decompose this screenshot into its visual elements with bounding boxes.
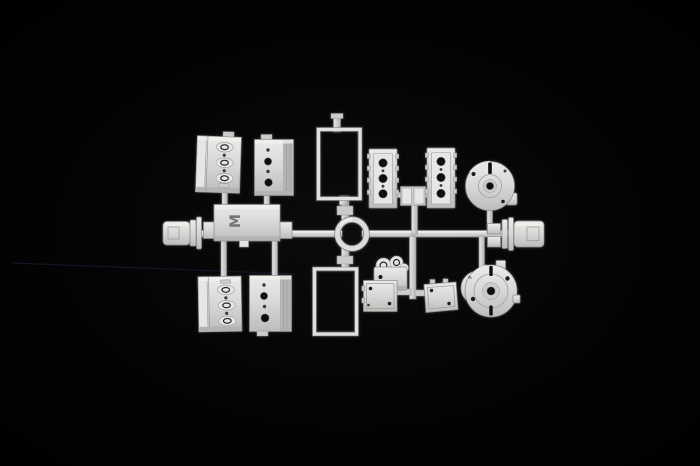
crankcase-half-lower-right — [250, 276, 292, 337]
cylinder-head-right — [425, 148, 456, 208]
crankcase-half-upper-right — [255, 135, 294, 196]
photo-canvas: M — [0, 0, 700, 466]
sprue-marking-letter: M — [228, 214, 244, 228]
cylinder-head-left — [367, 149, 398, 208]
engine-mount-right — [424, 279, 458, 313]
sprue-photo: M — [0, 0, 700, 466]
head-bracket — [401, 187, 426, 206]
engine-mount-left — [362, 281, 397, 312]
crankcase-half-lower-left — [198, 276, 242, 332]
black-background — [0, 0, 700, 466]
oil-pan: M — [204, 205, 293, 248]
left-end-connector — [163, 217, 202, 249]
crankcase-half-upper-left — [196, 131, 242, 193]
